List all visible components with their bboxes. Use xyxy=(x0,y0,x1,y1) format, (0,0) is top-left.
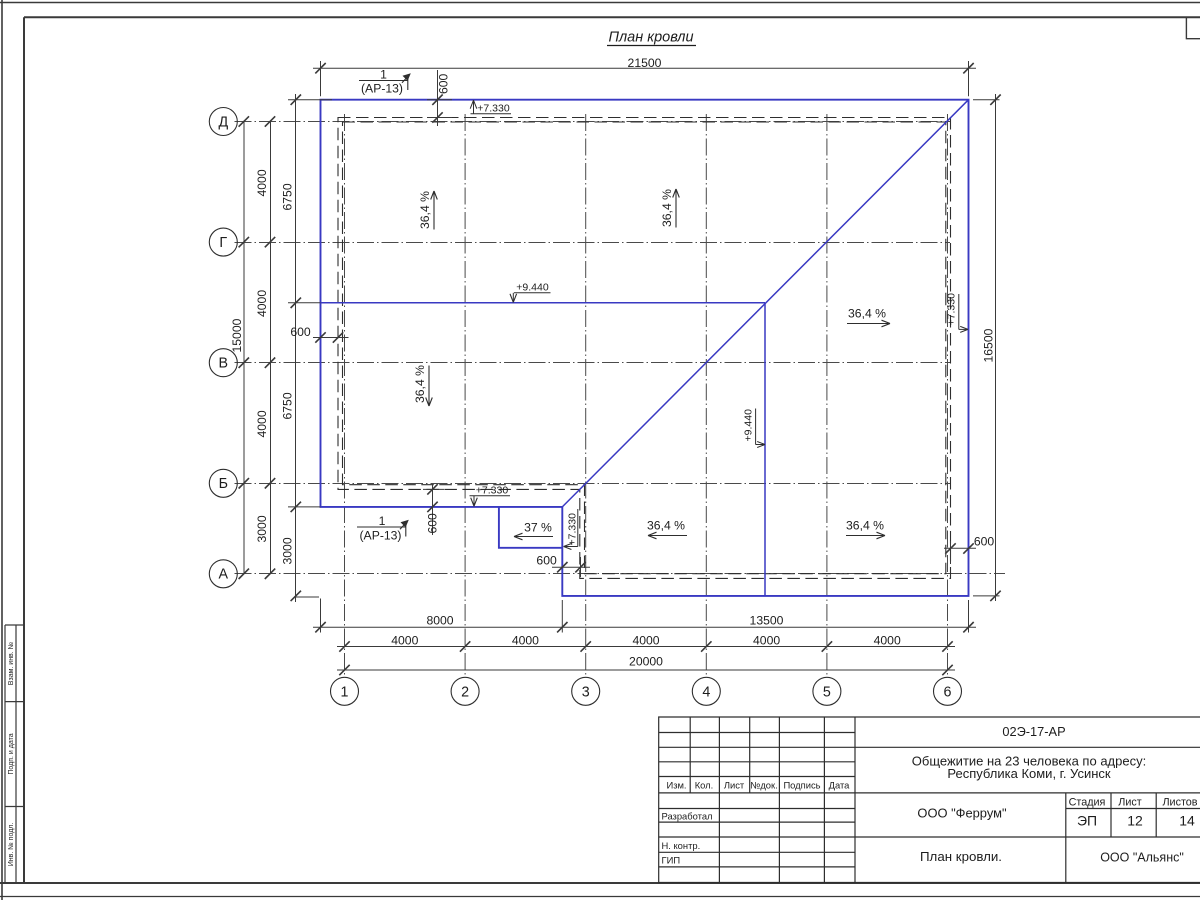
svg-text:В: В xyxy=(219,356,229,372)
svg-text:+9.440: +9.440 xyxy=(516,282,549,294)
svg-text:36,4 %: 36,4 % xyxy=(413,365,427,403)
svg-text:+7.330: +7.330 xyxy=(567,513,579,546)
svg-text:Листов: Листов xyxy=(1162,797,1197,809)
svg-text:5: 5 xyxy=(823,684,831,700)
svg-text:Подп. и дата: Подп. и дата xyxy=(8,733,15,774)
svg-text:Кол.: Кол. xyxy=(695,780,714,791)
svg-text:Н. контр.: Н. контр. xyxy=(662,840,701,851)
svg-text:ООО "Альянс": ООО "Альянс" xyxy=(1100,851,1184,865)
svg-text:План кровли: План кровли xyxy=(608,30,693,46)
svg-text:6: 6 xyxy=(944,684,952,700)
svg-text:8000: 8000 xyxy=(426,613,453,627)
svg-text:16500: 16500 xyxy=(982,328,996,362)
svg-text:21500: 21500 xyxy=(628,56,662,70)
svg-text:37 %: 37 % xyxy=(524,521,552,535)
svg-text:Б: Б xyxy=(219,476,228,492)
svg-text:600: 600 xyxy=(290,325,311,339)
svg-text:4000: 4000 xyxy=(753,633,780,647)
svg-text:1: 1 xyxy=(341,684,349,700)
svg-text:600: 600 xyxy=(437,73,451,94)
svg-text:+7.330: +7.330 xyxy=(946,293,958,326)
svg-text:6750: 6750 xyxy=(281,183,295,210)
svg-text:План кровли.: План кровли. xyxy=(920,849,1002,864)
svg-text:(АР-13): (АР-13) xyxy=(360,529,402,543)
svg-text:(АР-13): (АР-13) xyxy=(361,82,403,96)
svg-text:4000: 4000 xyxy=(255,290,269,317)
svg-text:Стадия: Стадия xyxy=(1069,797,1106,809)
svg-text:Подпись: Подпись xyxy=(783,780,820,791)
svg-text:36,4 %: 36,4 % xyxy=(848,307,886,321)
svg-text:600: 600 xyxy=(974,535,995,549)
svg-text:№док.: №док. xyxy=(750,780,777,791)
svg-text:20000: 20000 xyxy=(629,654,663,668)
svg-text:14: 14 xyxy=(1179,813,1195,829)
svg-text:13500: 13500 xyxy=(750,613,784,627)
svg-text:02Э-17-АР: 02Э-17-АР xyxy=(1002,724,1065,739)
svg-text:1: 1 xyxy=(380,68,387,82)
svg-text:4000: 4000 xyxy=(512,633,539,647)
svg-text:А: А xyxy=(219,567,229,583)
svg-text:Дата: Дата xyxy=(829,780,851,791)
svg-text:ГИП: ГИП xyxy=(662,855,681,866)
svg-text:ЭП: ЭП xyxy=(1077,813,1097,829)
svg-text:6750: 6750 xyxy=(281,392,295,419)
svg-text:2: 2 xyxy=(461,684,469,700)
svg-text:Изм.: Изм. xyxy=(666,780,686,791)
svg-text:+9.440: +9.440 xyxy=(743,409,755,442)
svg-text:3: 3 xyxy=(582,684,590,700)
svg-text:Инв. № подл.: Инв. № подл. xyxy=(8,823,15,867)
svg-text:36,4 %: 36,4 % xyxy=(660,189,674,227)
svg-text:Взам. инв. №: Взам. инв. № xyxy=(8,642,15,685)
svg-text:Лист: Лист xyxy=(1118,797,1142,809)
svg-text:Разработал: Разработал xyxy=(662,811,713,822)
svg-text:4000: 4000 xyxy=(632,633,659,647)
svg-text:36,4 %: 36,4 % xyxy=(418,191,432,229)
svg-text:600: 600 xyxy=(536,554,557,568)
svg-text:4000: 4000 xyxy=(874,633,901,647)
svg-text:Республика Коми, г. Усинск: Республика Коми, г. Усинск xyxy=(947,766,1110,781)
svg-text:ООО "Феррум": ООО "Феррум" xyxy=(917,805,1007,820)
svg-text:3000: 3000 xyxy=(281,537,295,564)
svg-text:12: 12 xyxy=(1127,813,1143,829)
svg-text:3000: 3000 xyxy=(255,515,269,542)
svg-text:+7.330: +7.330 xyxy=(476,485,509,497)
svg-text:4000: 4000 xyxy=(255,410,269,437)
svg-text:36,4 %: 36,4 % xyxy=(846,519,884,533)
svg-text:15000: 15000 xyxy=(230,318,244,352)
svg-text:1: 1 xyxy=(379,514,386,528)
svg-text:+7.330: +7.330 xyxy=(477,103,510,115)
svg-text:Лист: Лист xyxy=(724,780,745,791)
svg-text:36,4 %: 36,4 % xyxy=(647,519,685,533)
svg-text:4000: 4000 xyxy=(391,633,418,647)
svg-text:4000: 4000 xyxy=(255,169,269,196)
svg-text:Г: Г xyxy=(219,235,227,251)
svg-text:Д: Д xyxy=(218,114,228,130)
svg-text:600: 600 xyxy=(426,513,440,534)
svg-text:4: 4 xyxy=(702,684,710,700)
